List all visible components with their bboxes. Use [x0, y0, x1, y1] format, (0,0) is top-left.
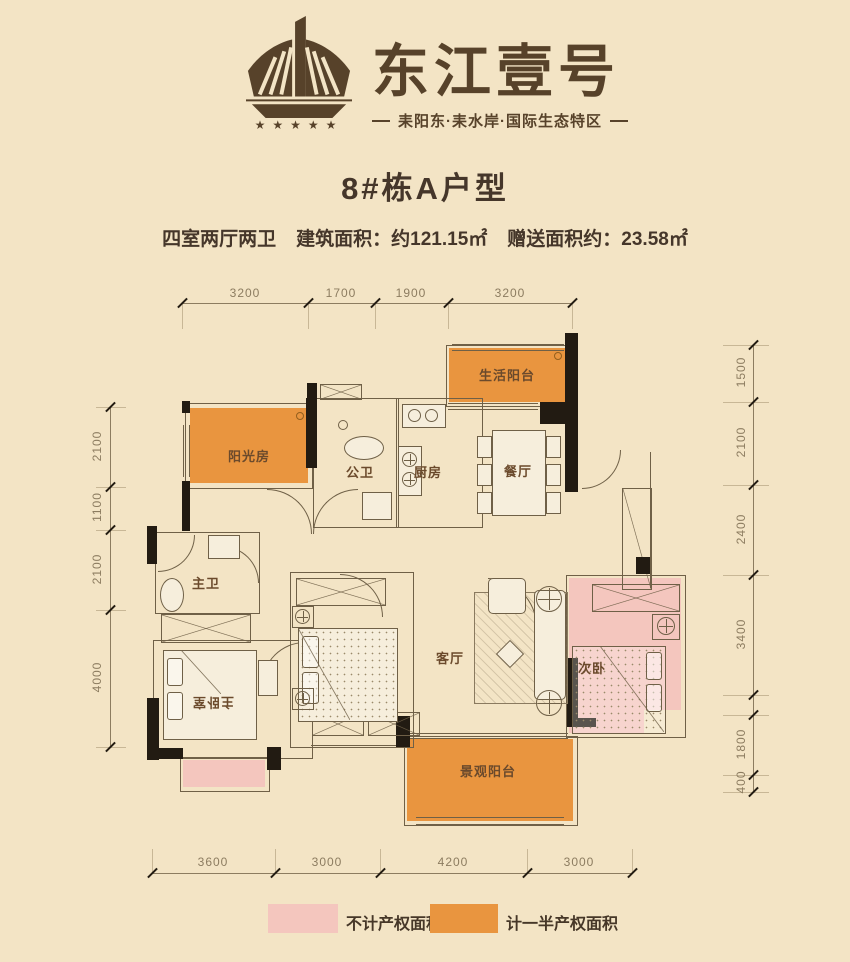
- dim-label: 400: [734, 762, 748, 802]
- tagline-dash-left: [372, 120, 390, 122]
- dim-label: 2100: [90, 426, 104, 466]
- room-label-guest-bath: 公卫: [330, 462, 390, 481]
- chair-icon: [477, 436, 492, 458]
- dim-line-bottom: [152, 873, 632, 874]
- wall-line: [311, 745, 397, 746]
- armchair-icon: [488, 578, 526, 614]
- dim-ext: [182, 303, 183, 329]
- unit-title: 8#栋A户型: [0, 163, 850, 208]
- chair-icon: [546, 464, 561, 486]
- door-arc: [267, 489, 312, 534]
- dim-label: 2100: [734, 422, 748, 462]
- lamp-icon: [295, 691, 310, 706]
- entry-door-arc: [582, 450, 621, 489]
- flue-shaft: [320, 384, 362, 400]
- wall-line: [650, 452, 651, 588]
- window: [183, 425, 190, 477]
- dim-label: 1500: [734, 352, 748, 392]
- dim-ext: [572, 303, 573, 329]
- drain-icon: [338, 420, 348, 430]
- sink-basin-icon: [408, 409, 421, 422]
- room-label-master-bedroom: 主卧室: [173, 694, 253, 713]
- wall-segment: [147, 526, 157, 564]
- wall-segment: [565, 333, 578, 492]
- dim-label: 4200: [433, 855, 473, 869]
- chair-icon: [477, 492, 492, 514]
- room-label-kitchen: 厨房: [398, 462, 458, 481]
- sink-basin-icon: [425, 409, 438, 422]
- spec-area: 建筑面积：约121.15㎡: [296, 224, 487, 251]
- chair-icon: [546, 436, 561, 458]
- dim-ext: [723, 575, 769, 576]
- legend-swatch-pink: [268, 904, 338, 933]
- spec-rooms: 四室两厅两卫: [162, 224, 276, 251]
- dim-label: 3200: [225, 286, 265, 300]
- dim-label: 3400: [734, 614, 748, 654]
- room-label-second-bedroom: 次卧: [562, 658, 622, 677]
- dim-label: 1100: [90, 487, 104, 527]
- dim-ext: [723, 695, 769, 696]
- dim-label: 1700: [321, 286, 361, 300]
- wardrobe: [296, 578, 386, 606]
- wall-segment: [636, 557, 650, 574]
- wardrobe: [161, 614, 251, 643]
- entry-cabinet: [622, 488, 652, 590]
- tagline-text: 耒阳东·耒水岸·国际生态特区: [398, 110, 602, 131]
- wall-segment: [267, 747, 281, 770]
- room-label-service-balcony: 生活阳台: [467, 365, 547, 384]
- lamp-icon: [657, 617, 675, 635]
- chair-icon: [546, 492, 561, 514]
- room-label-master-bath: 主卫: [176, 573, 236, 592]
- room-label-living: 客厅: [420, 648, 480, 667]
- brand-logo-ship-icon: [240, 14, 358, 120]
- brand-name: 东江壹号: [372, 26, 620, 108]
- room-label-dining: 餐厅: [488, 461, 548, 480]
- room-label-sunroom: 阳光房: [214, 446, 284, 465]
- sink-icon: [208, 535, 240, 559]
- dim-ext: [723, 485, 769, 486]
- dim-ext: [723, 345, 769, 346]
- dim-ext: [723, 402, 769, 403]
- window: [452, 344, 564, 351]
- floor-plan-flyer: ★★★★★ 东江壹号 耒阳东·耒水岸·国际生态特区 8#栋A户型 四室两厅两卫 …: [0, 0, 850, 962]
- sink-icon: [362, 492, 392, 520]
- room-label-view-balcony: 景观阳台: [448, 761, 528, 780]
- dim-ext: [375, 303, 376, 329]
- view-balcony-outline: [404, 736, 578, 826]
- dim-ext: [723, 715, 769, 716]
- wall-segment: [306, 398, 317, 468]
- dim-label: 4000: [90, 657, 104, 697]
- window: [416, 817, 564, 825]
- dim-label: 1800: [734, 724, 748, 764]
- legend-label-pink: 不计产权面积: [346, 910, 442, 934]
- tagline-dash-right: [610, 120, 628, 122]
- wall-segment: [147, 748, 183, 759]
- lamp-icon: [295, 609, 310, 624]
- dim-line-top: [182, 303, 572, 304]
- wardrobe: [592, 584, 680, 612]
- logo-stars: ★★★★★: [238, 118, 360, 132]
- master-bay-window-outline: [180, 757, 270, 792]
- wall-segment: [540, 402, 566, 424]
- dim-label: 3000: [307, 855, 347, 869]
- legend-swatch-orange: [430, 904, 498, 933]
- spec-gift: 赠送面积约：23.58㎡: [507, 224, 688, 251]
- blanket-fold: [181, 650, 221, 694]
- dim-label: 2400: [734, 509, 748, 549]
- wall-segment: [182, 401, 190, 413]
- dim-label: 3000: [559, 855, 599, 869]
- dim-line-right: [753, 345, 754, 792]
- dim-label: 2100: [90, 549, 104, 589]
- window: [448, 403, 538, 410]
- dim-label: 3600: [193, 855, 233, 869]
- brand-tagline: 耒阳东·耒水岸·国际生态特区: [372, 110, 628, 131]
- window: [410, 733, 568, 739]
- legend-label-orange: 计一半产权面积: [506, 910, 618, 934]
- unit-spec: 四室两厅两卫 建筑面积：约121.15㎡ 赠送面积约：23.58㎡: [0, 224, 850, 251]
- dim-ext: [308, 303, 309, 329]
- wall-segment: [307, 383, 317, 399]
- dim-ext: [448, 303, 449, 329]
- dim-line-left: [110, 407, 111, 747]
- dim-label: 3200: [490, 286, 530, 300]
- wall-segment: [182, 481, 190, 531]
- ceiling-fan-icon: [536, 586, 562, 612]
- nightstand-icon: [258, 660, 278, 696]
- ceiling-fan-icon: [536, 690, 562, 716]
- toilet-icon: [344, 436, 384, 460]
- dim-label: 1900: [391, 286, 431, 300]
